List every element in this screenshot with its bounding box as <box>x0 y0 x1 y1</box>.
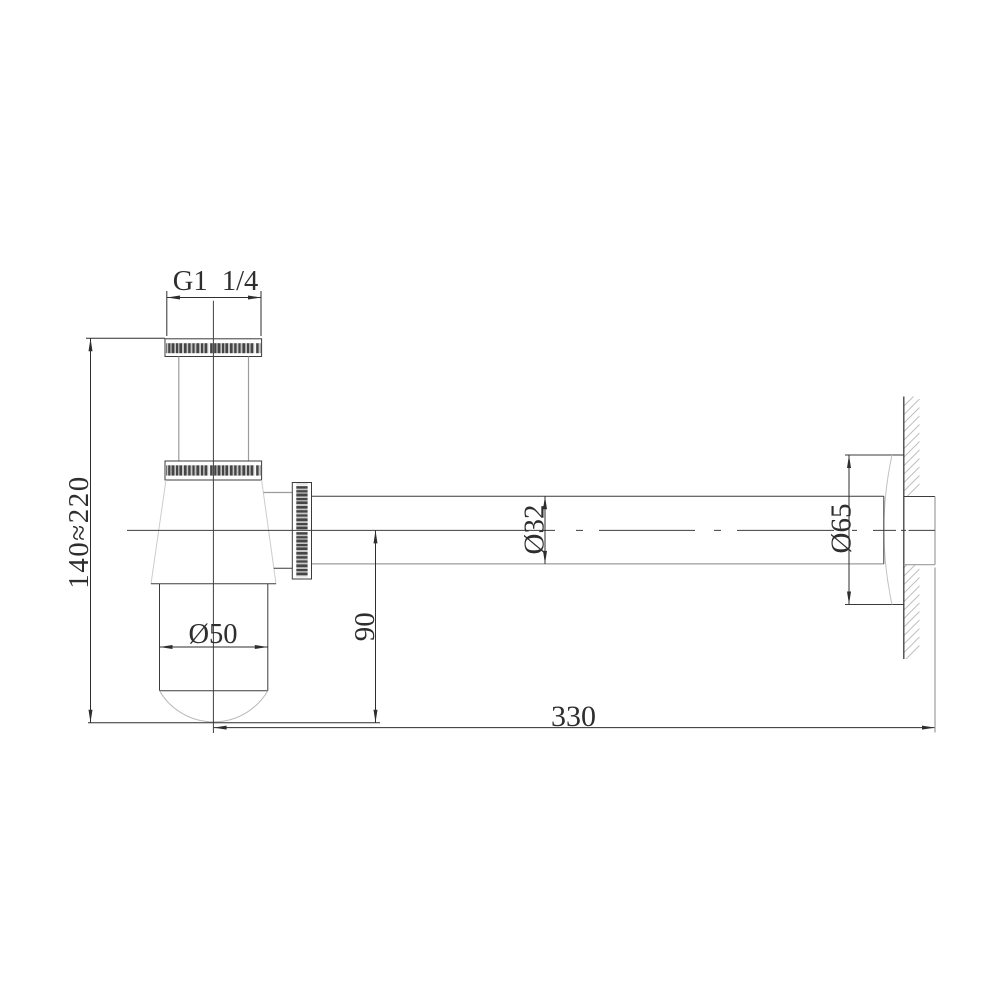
svg-text:Ø50: Ø50 <box>188 619 237 650</box>
svg-text:Ø65: Ø65 <box>826 504 858 554</box>
svg-text:90: 90 <box>349 612 381 641</box>
svg-text:140≈220: 140≈220 <box>63 475 95 588</box>
svg-text:Ø32: Ø32 <box>519 505 551 555</box>
svg-text:G1 1/4: G1 1/4 <box>173 266 259 297</box>
svg-text:330: 330 <box>551 700 596 733</box>
